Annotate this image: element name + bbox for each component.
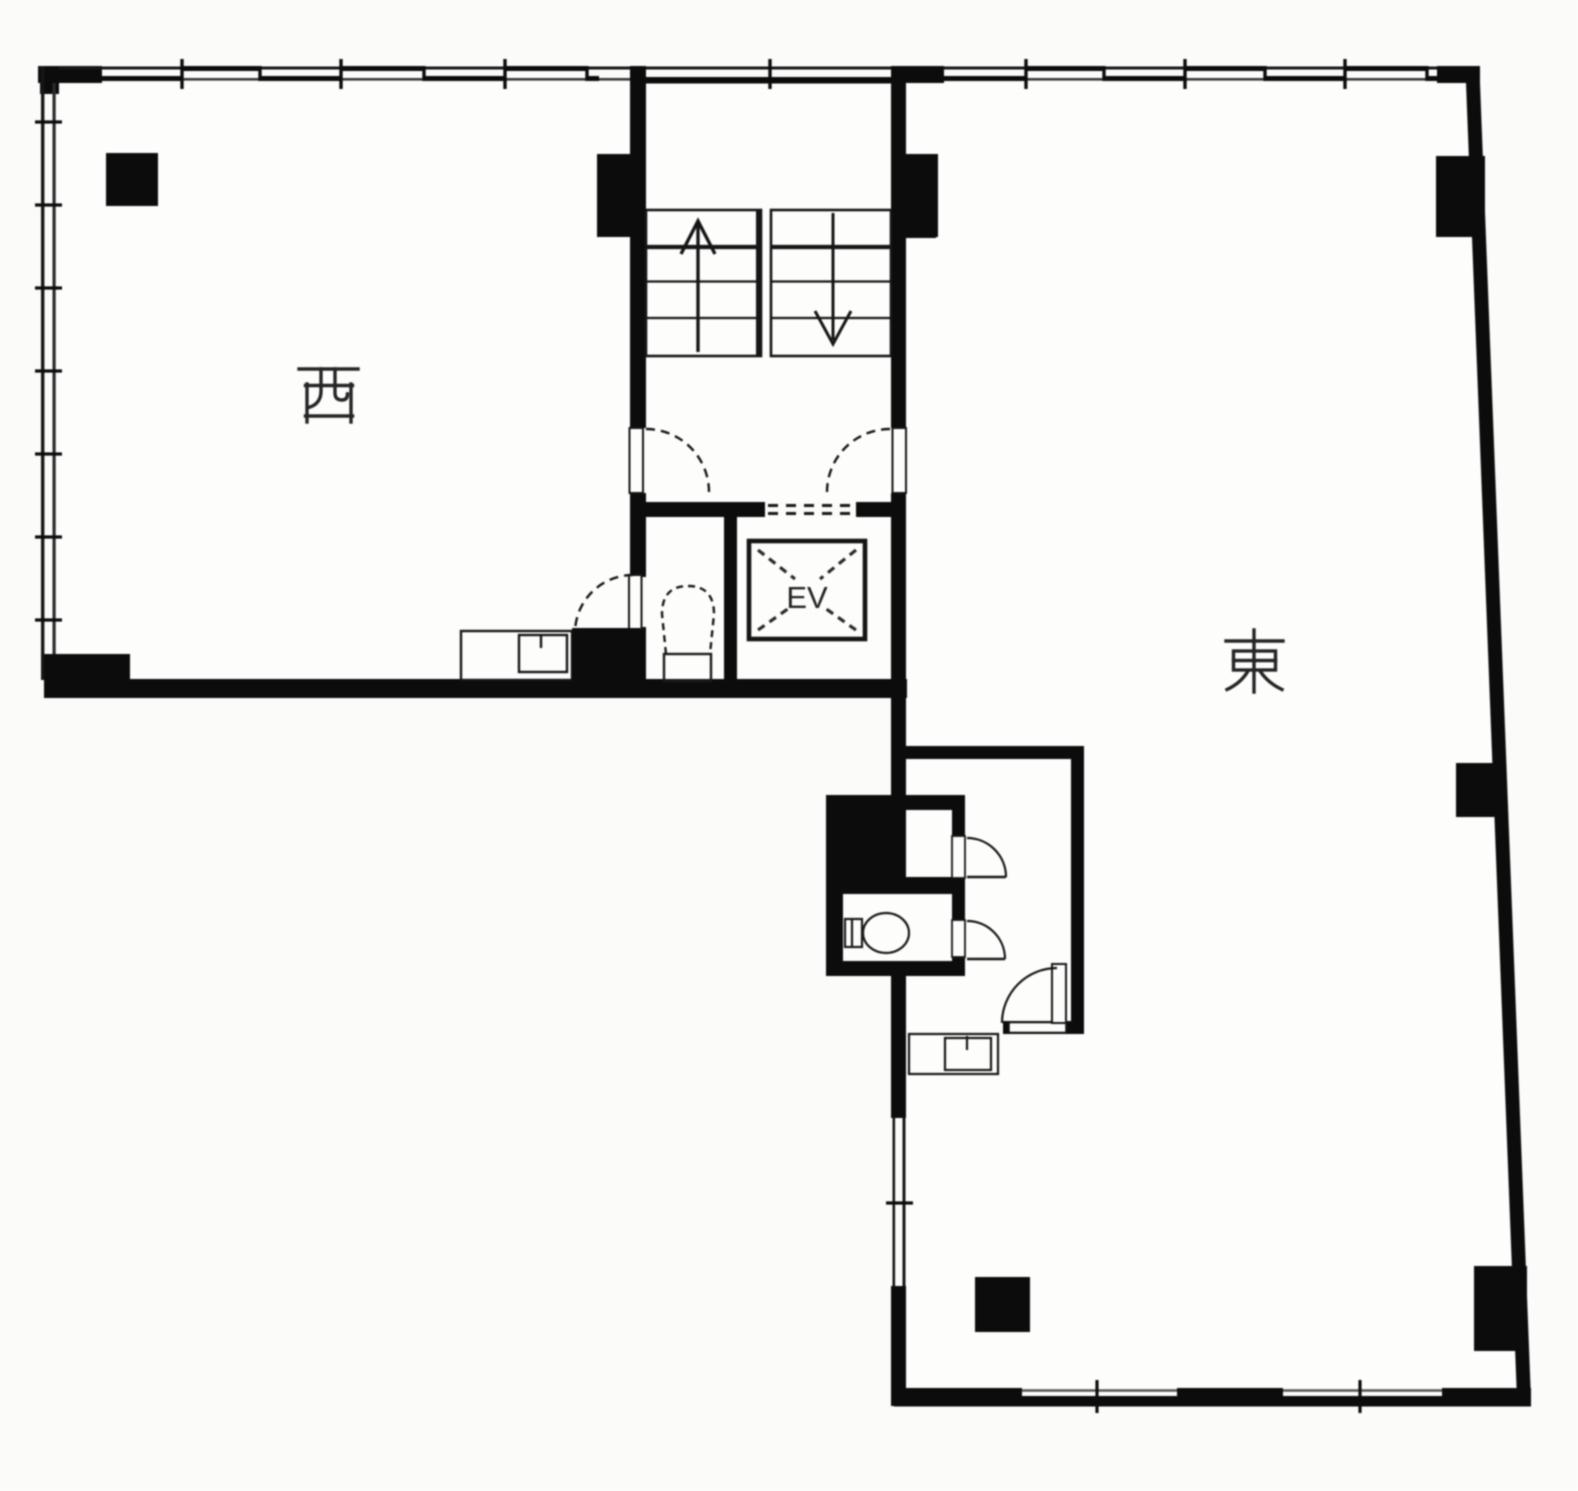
svg-text:EV: EV [786, 580, 828, 615]
